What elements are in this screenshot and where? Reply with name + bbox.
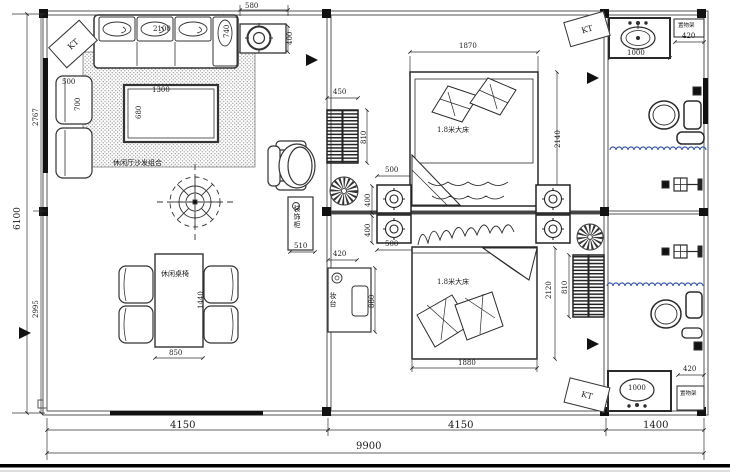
dim-580: 580 <box>245 3 258 10</box>
bed-2 <box>412 225 537 359</box>
dim-680-coffee: 680 <box>136 106 143 119</box>
sliding-door-bar <box>110 411 263 416</box>
label-dresser: 妆台 <box>329 292 336 308</box>
floor-drain-bottom <box>694 342 702 350</box>
ceiling-fan-symbol <box>157 164 233 240</box>
toilet-top <box>649 101 704 144</box>
dim-420-dresser: 420 <box>333 251 346 258</box>
shower-curtain-top <box>610 147 706 150</box>
shower-head-top <box>662 178 702 191</box>
dim-1440-table: 1440 <box>198 291 205 309</box>
dim-500-nightstand-bottom: 500 <box>385 241 398 248</box>
dim-880-dresser: 880 <box>369 295 376 308</box>
dim-400-nightstand-bottom: 400 <box>365 224 372 237</box>
cabinet-2 <box>573 255 604 317</box>
shower-head-bottom <box>662 245 702 258</box>
dim-1000-bath-bottom: 1000 <box>628 385 646 392</box>
dim-400-nightstand-top: 400 <box>365 194 372 207</box>
dim-4150-mid: 4150 <box>448 421 473 431</box>
toilet-bottom <box>651 292 702 338</box>
dim-1880-bed2: 1880 <box>458 360 476 367</box>
shower-curtain-bottom <box>607 283 703 286</box>
dim-420-bath-bottom: 420 <box>683 366 696 373</box>
label-deco-cabinet: 装饰柜 <box>293 205 300 229</box>
sheet-border <box>0 464 730 471</box>
ac-unit-label: KT <box>580 389 593 400</box>
dim-500-lounge: 500 <box>62 79 75 86</box>
dim-740-sofa: 740 <box>224 25 231 38</box>
label-shelf-top: 置物架 <box>678 24 695 30</box>
dim-510-deco: 510 <box>294 243 307 250</box>
bath-bottom <box>607 245 704 411</box>
dim-2120-bed2: 2120 <box>546 281 553 299</box>
bed-1 <box>410 72 538 206</box>
dim-400-corner: 400 <box>287 32 294 45</box>
dim-810-cabinet1: 810 <box>361 131 368 144</box>
label-bed1: 1.8米大床 <box>437 127 469 134</box>
dim-1870-bed1: 1870 <box>459 43 477 50</box>
label-shelf-bottom: 置物架 <box>680 392 697 398</box>
label-bed2: 1.8米大床 <box>437 279 469 286</box>
dim-450-cabinet1: 450 <box>333 89 346 96</box>
dim-1000-bath-top: 1000 <box>627 50 645 57</box>
dim-500-nightstand-top: 500 <box>385 167 398 174</box>
dim-9900: 9900 <box>356 442 381 452</box>
sofa <box>94 15 238 68</box>
dim-2995: 2995 <box>33 300 40 318</box>
cabinet-1 <box>327 110 358 163</box>
dim-6100: 6100 <box>14 207 23 230</box>
floor-drain-top <box>693 87 701 95</box>
dim-810-cabinet2: 810 <box>562 281 569 294</box>
ac-unit-label: KT <box>66 37 80 51</box>
dim-1300-coffee: 1300 <box>152 87 170 94</box>
bath-top <box>609 18 706 191</box>
dining-set <box>119 254 238 347</box>
arrow-icon <box>306 54 318 66</box>
arrow-icon <box>587 338 599 350</box>
desk-chair <box>268 141 315 190</box>
dim-700-lounge: 700 <box>75 98 82 111</box>
fan-1 <box>330 177 358 205</box>
dim-420-bath-top: 420 <box>682 33 695 40</box>
dim-850-table: 850 <box>169 350 182 357</box>
ac-unit-label: KT <box>580 23 593 35</box>
dim-2100-sofa: 2100 <box>153 26 171 33</box>
label-table-chairs: 休闲桌椅 <box>161 271 189 278</box>
dim-2767: 2767 <box>33 108 40 126</box>
label-sofa-group: 休闲厅沙发组合 <box>113 160 162 167</box>
floor-plan: 580 400 740 2100 500 700 1300 680 休闲厅沙发组… <box>0 0 730 473</box>
dim-2140-bed1: 2140 <box>555 130 562 148</box>
arrow-icon <box>19 327 31 339</box>
arrow-icon <box>587 72 599 84</box>
corner-table <box>240 23 286 53</box>
dim-1400: 1400 <box>643 421 668 431</box>
shelf-box-bottom <box>677 386 704 410</box>
dim-4150-left: 4150 <box>170 421 195 431</box>
fan-2 <box>577 224 603 250</box>
